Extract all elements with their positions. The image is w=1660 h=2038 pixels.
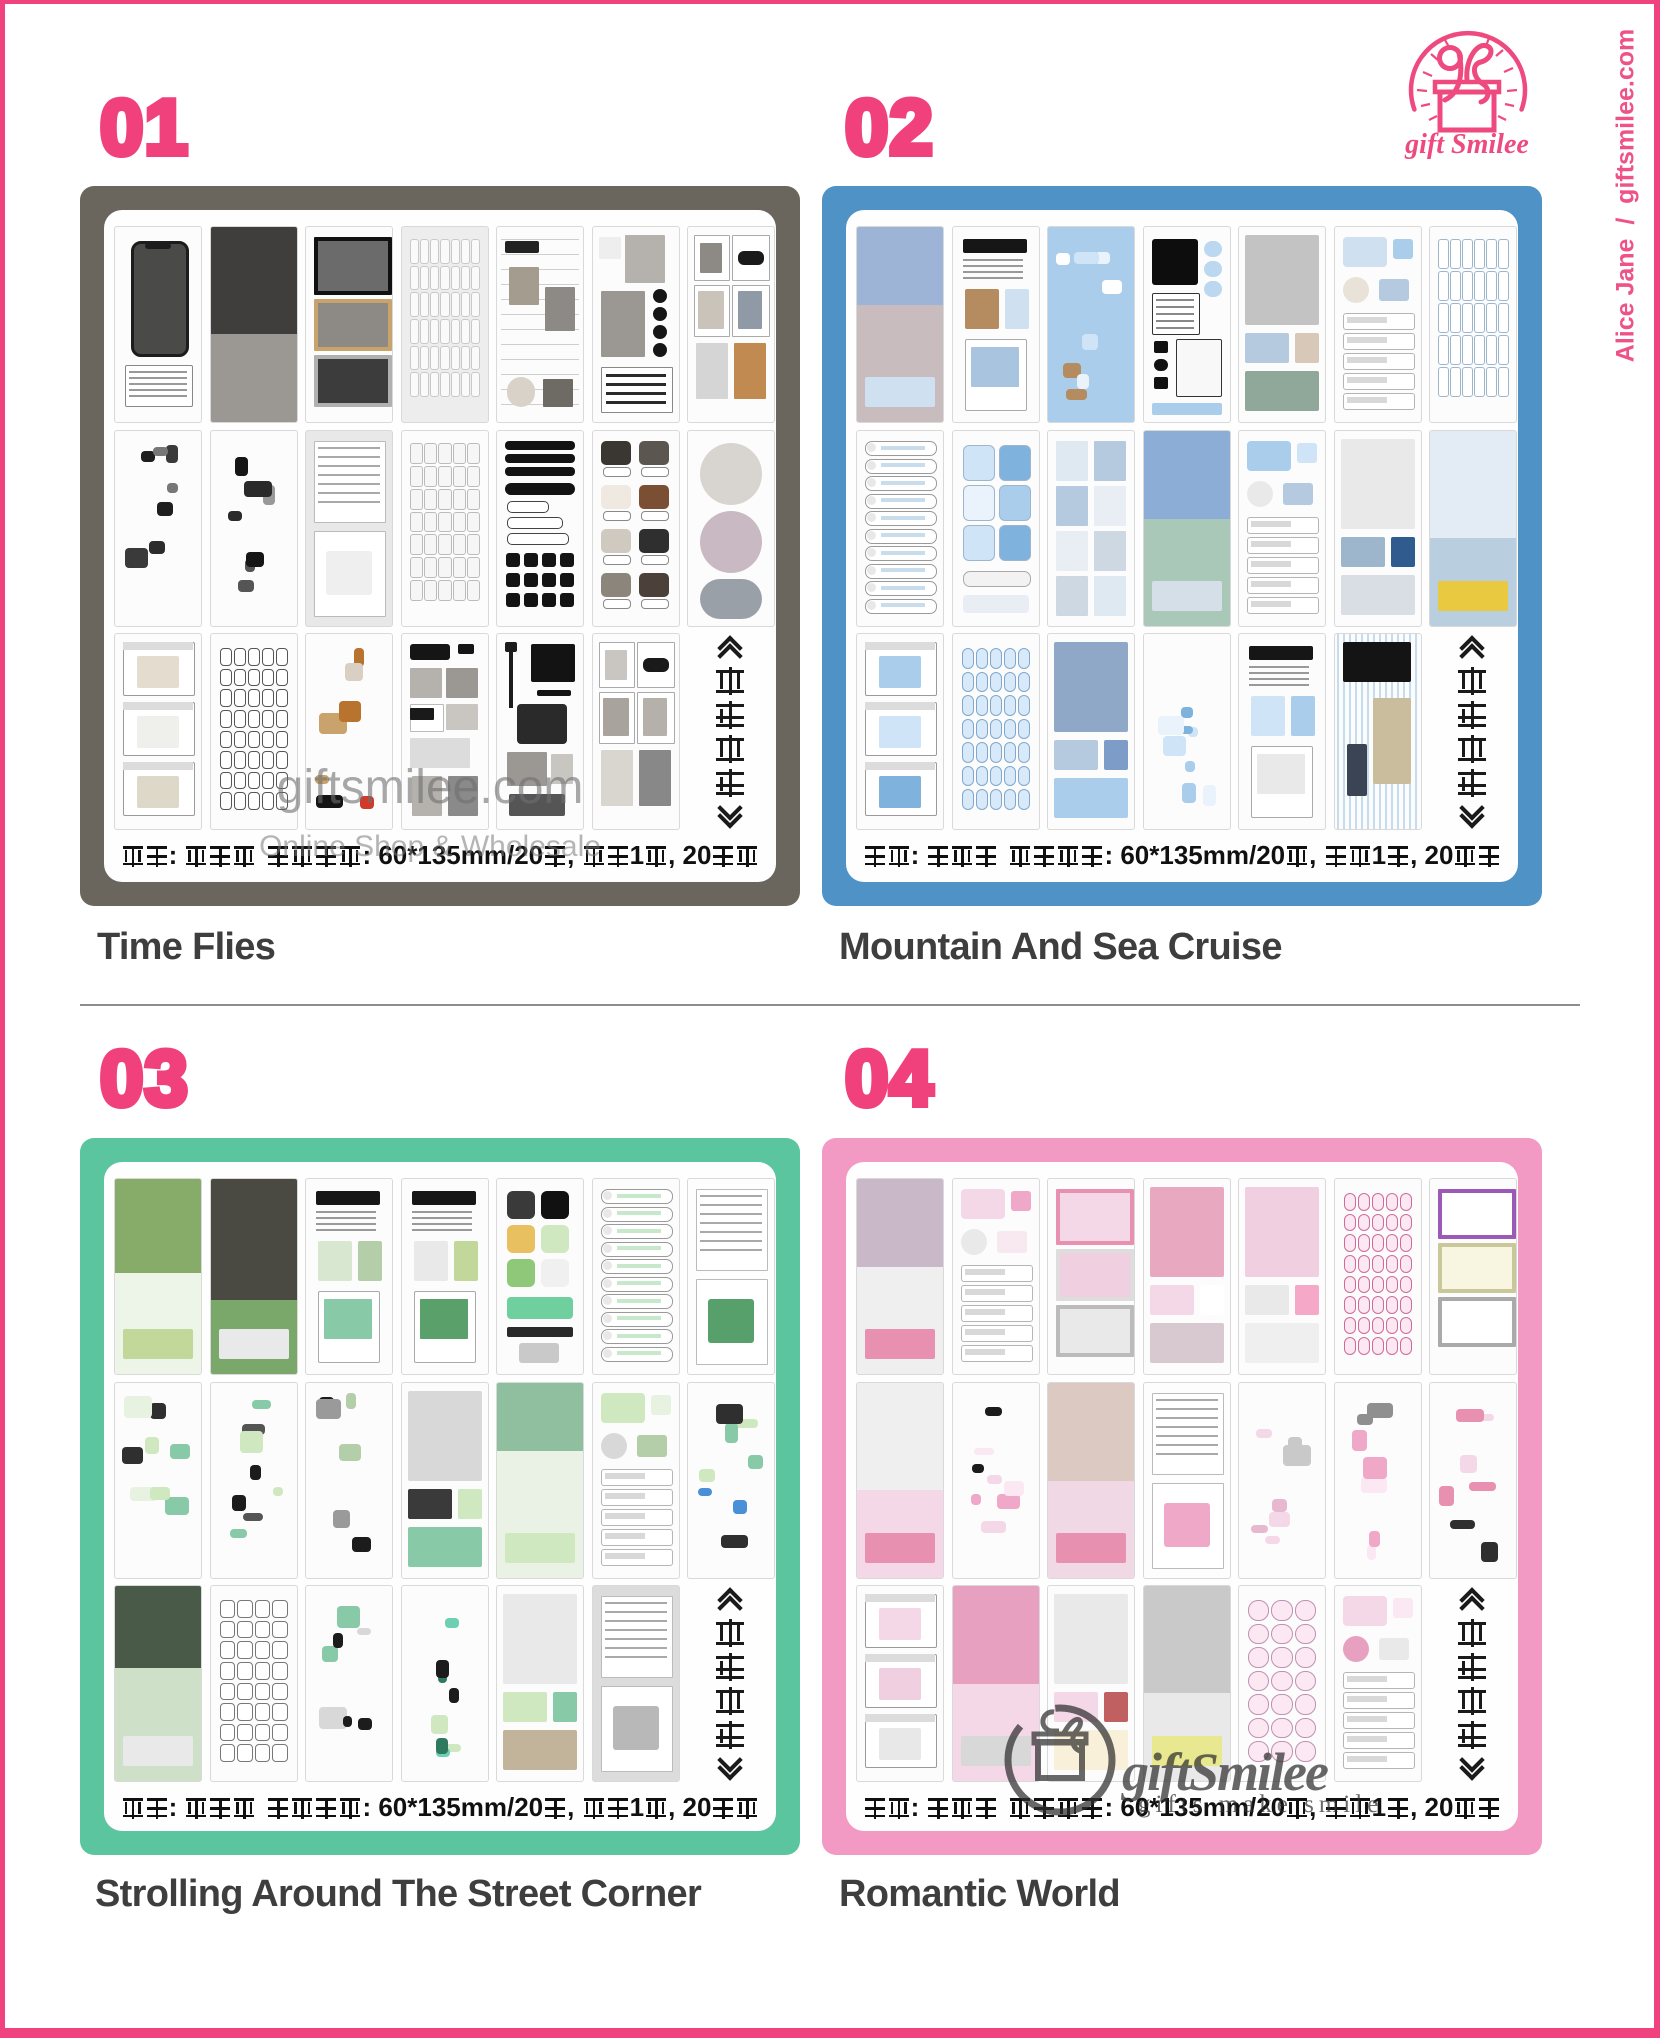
svg-text:gift Smilee: gift Smilee <box>1404 129 1529 160</box>
svg-text:gifts make smile: gifts make smile <box>1138 1791 1383 1818</box>
